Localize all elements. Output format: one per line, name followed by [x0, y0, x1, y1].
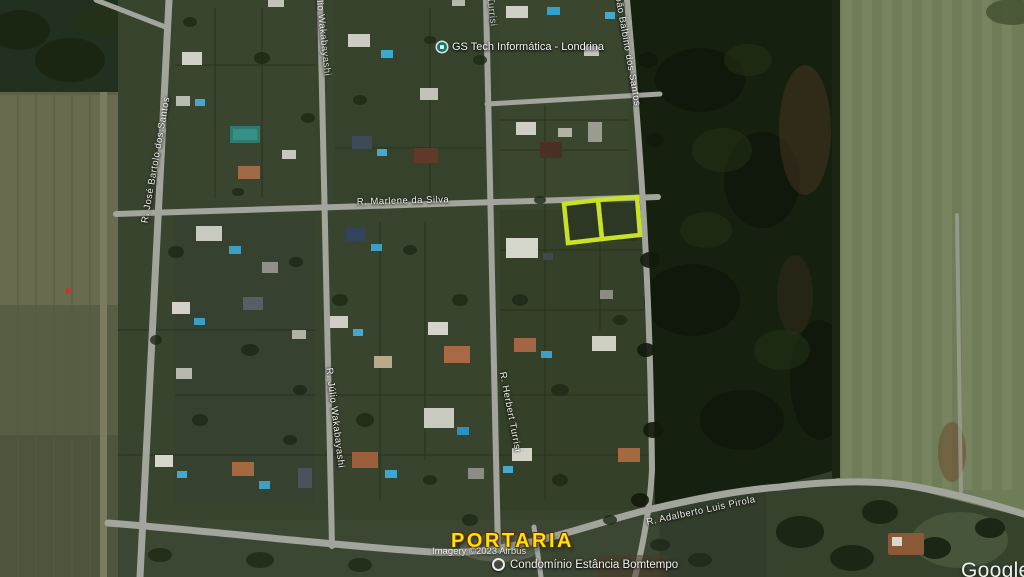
business-poi-icon — [437, 42, 447, 52]
poi-condominium[interactable]: Condomínio Estância Bomtempo — [492, 558, 678, 571]
map-container[interactable]: R. Marlene da Silva R. Júlio Wakabayashi… — [0, 0, 1024, 577]
lot-highlight-overlay — [0, 0, 1024, 577]
imagery-attribution: Imagery ©2023 Airbus — [432, 546, 526, 557]
poi-condominium-label: Condomínio Estância Bomtempo — [510, 559, 678, 571]
poi-gs-tech[interactable]: GS Tech Informática - Londrina — [437, 41, 604, 53]
highlighted-lot-right — [598, 197, 640, 239]
highlighted-lot-left — [564, 200, 602, 243]
google-logo: Google — [961, 559, 1024, 577]
map-pin-icon — [492, 558, 505, 571]
poi-gs-tech-label: GS Tech Informática - Londrina — [452, 41, 604, 53]
